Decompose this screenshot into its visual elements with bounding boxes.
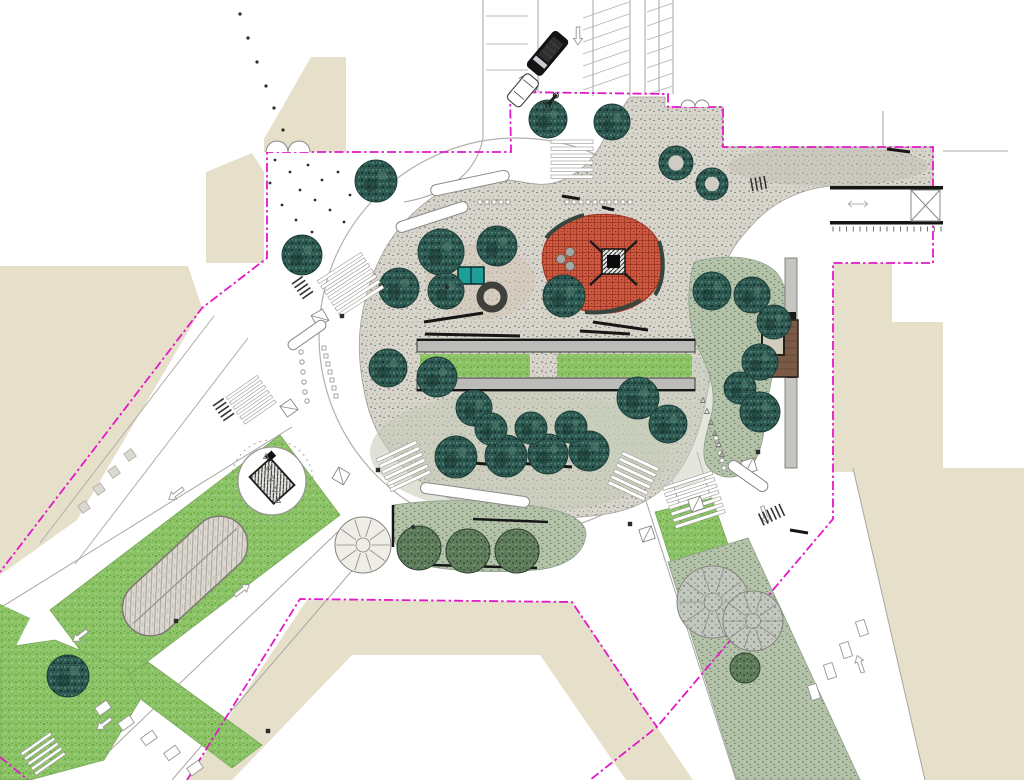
east-walkway-wall-north <box>830 186 943 190</box>
paver-dots-ring-west <box>322 346 338 398</box>
north-street-parking-ticks <box>486 16 528 70</box>
building-southeast <box>853 468 1024 780</box>
climbing-frame-core <box>607 255 620 268</box>
east-walkway-arrow <box>848 201 868 207</box>
east-walkway-wall-south <box>830 221 943 225</box>
crosswalk-west <box>226 375 276 424</box>
survey-dots-field <box>269 159 352 234</box>
building-northwest-lower <box>206 153 264 263</box>
lawn-strip-east <box>557 354 692 377</box>
sketch-tree-se-2 <box>723 591 783 651</box>
building-northwest-upper <box>264 57 346 152</box>
shrubs-south-bed <box>397 526 539 573</box>
shrub-dark-se <box>730 653 760 683</box>
east-walkway-railing <box>833 227 941 232</box>
building-east <box>833 263 943 472</box>
site-plan-canvas: Urban plaza landscape site plan <box>0 0 1024 780</box>
sketch-tree-west <box>335 517 391 573</box>
truck <box>525 30 569 77</box>
bollards-ring-west <box>299 350 309 403</box>
paving-tint-top <box>728 146 928 186</box>
site-plan-drawing: Urban plaza landscape site plan <box>0 0 1024 780</box>
